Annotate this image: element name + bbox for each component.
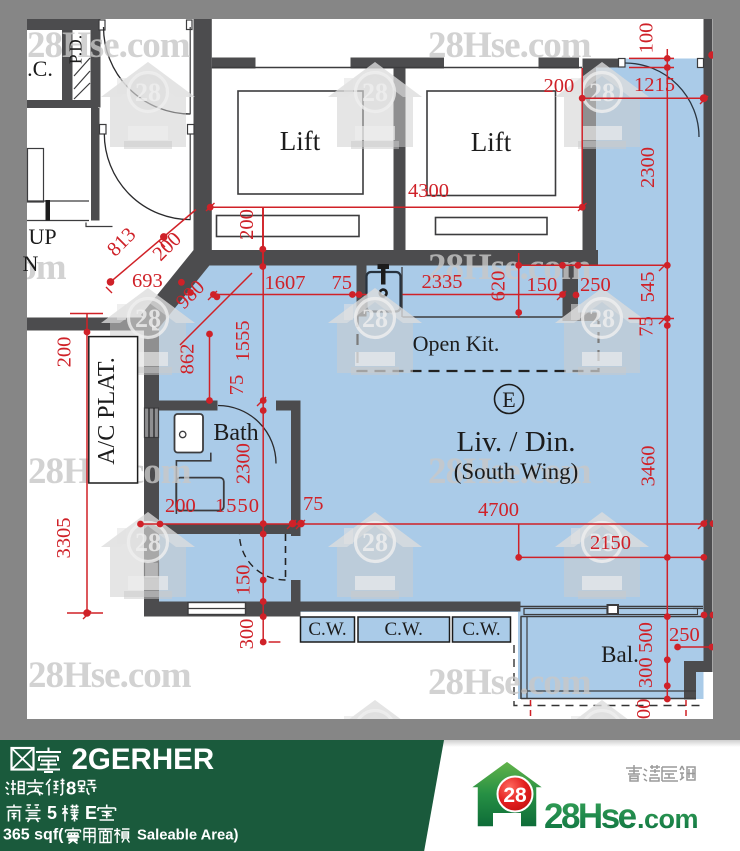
svg-text:3460: 3460 xyxy=(638,446,660,487)
svg-text:Saleable Area): Saleable Area) xyxy=(137,828,239,844)
svg-text:75: 75 xyxy=(636,316,658,337)
svg-text:200: 200 xyxy=(236,209,258,240)
svg-text:75: 75 xyxy=(303,493,324,515)
svg-text:300: 300 xyxy=(236,619,258,650)
svg-text:1550: 1550 xyxy=(215,495,260,517)
svg-text:500: 500 xyxy=(633,699,655,730)
svg-text:500: 500 xyxy=(635,622,657,653)
svg-text:2300: 2300 xyxy=(637,147,659,188)
svg-text:Open Kit.: Open Kit. xyxy=(413,331,500,356)
svg-text:545: 545 xyxy=(637,272,659,303)
svg-text:2300: 2300 xyxy=(233,443,255,484)
svg-text:1607: 1607 xyxy=(265,272,306,294)
svg-text:P.D.: P.D. xyxy=(65,35,85,64)
svg-text:200: 200 xyxy=(544,75,575,97)
svg-text:C.W.: C.W. xyxy=(462,619,500,640)
svg-text:E: E xyxy=(85,803,97,823)
svg-text:A/C PLAT.: A/C PLAT. xyxy=(94,357,120,465)
svg-text:75: 75 xyxy=(332,272,353,294)
svg-text:Lift: Lift xyxy=(280,126,321,156)
svg-text:200: 200 xyxy=(165,495,196,517)
svg-text:(South Wing): (South Wing) xyxy=(454,459,579,484)
svg-text:Bath: Bath xyxy=(213,420,258,446)
svg-text:Lift: Lift xyxy=(471,127,512,157)
svg-text:693: 693 xyxy=(132,270,163,292)
svg-text:620: 620 xyxy=(488,271,510,302)
svg-text:Bal.: Bal. xyxy=(601,642,639,667)
svg-text:Liv. / Din.: Liv. / Din. xyxy=(457,426,576,458)
svg-text:862: 862 xyxy=(177,344,199,375)
svg-text:150: 150 xyxy=(527,274,558,296)
svg-text:C.W.: C.W. xyxy=(308,619,346,640)
svg-text:2335: 2335 xyxy=(422,271,463,293)
svg-text:75: 75 xyxy=(226,375,248,396)
svg-text:2GERHER: 2GERHER xyxy=(72,745,215,773)
svg-text:C.W.: C.W. xyxy=(385,619,423,640)
svg-text:150: 150 xyxy=(233,565,255,596)
svg-text:200: 200 xyxy=(54,337,76,368)
svg-text:N: N xyxy=(23,251,39,276)
svg-text:300: 300 xyxy=(635,657,657,688)
svg-text:250: 250 xyxy=(580,274,611,296)
svg-text:5: 5 xyxy=(47,803,57,823)
svg-text:1555: 1555 xyxy=(232,321,254,362)
svg-text:.C.: .C. xyxy=(27,56,53,81)
svg-text:4700: 4700 xyxy=(478,499,519,521)
svg-text:1215: 1215 xyxy=(634,74,675,96)
svg-text:28: 28 xyxy=(503,784,527,807)
svg-text:365 sqf(: 365 sqf( xyxy=(3,827,64,844)
svg-text:2150: 2150 xyxy=(590,532,631,554)
svg-text:E: E xyxy=(502,387,515,412)
svg-text:100: 100 xyxy=(636,23,658,54)
svg-text:.com: .com xyxy=(637,804,698,834)
svg-text:4300: 4300 xyxy=(408,180,449,202)
svg-text:28Hse: 28Hse xyxy=(544,797,637,836)
svg-text:3305: 3305 xyxy=(53,518,75,559)
svg-text:UP: UP xyxy=(29,224,57,249)
svg-text:8: 8 xyxy=(66,778,76,799)
svg-text:250: 250 xyxy=(669,624,700,646)
